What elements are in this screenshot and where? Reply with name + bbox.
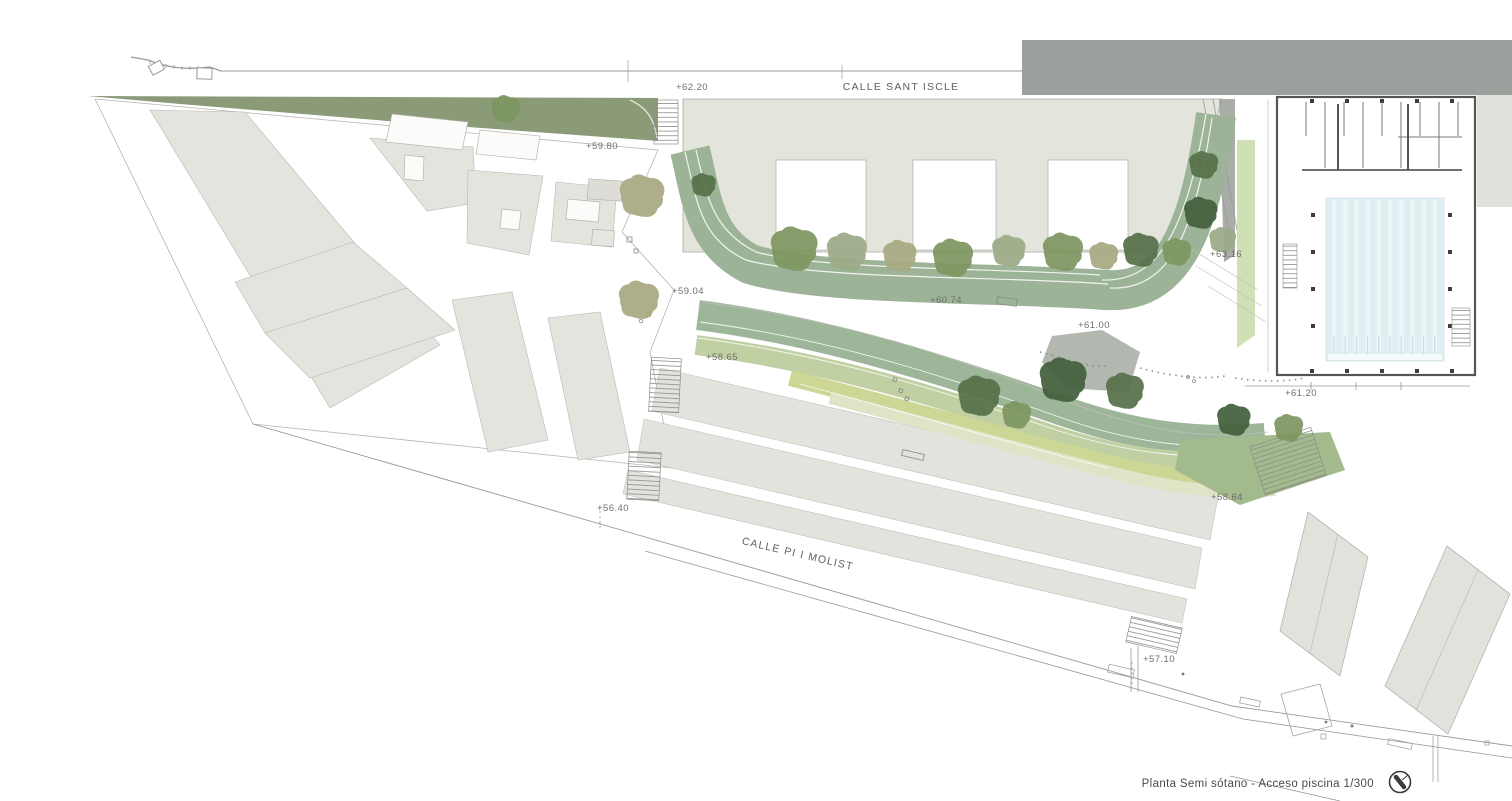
stair — [649, 357, 682, 412]
column — [1310, 369, 1314, 373]
street-label-sant-iscle: CALLE SANT ISCLE — [843, 81, 959, 93]
stair — [654, 100, 678, 144]
column — [1450, 369, 1454, 373]
column — [1310, 99, 1314, 103]
drawing-title: Planta Semi sótano - Acceso piscina 1/30… — [1142, 778, 1374, 790]
school-building — [683, 99, 1222, 252]
column — [1448, 213, 1452, 217]
ramp-green-strip — [1237, 140, 1255, 348]
pool-end-lane — [1328, 354, 1442, 360]
right-edge-parcel — [1477, 95, 1512, 207]
shed — [591, 229, 614, 246]
courtyard — [404, 155, 424, 181]
courtyard — [500, 209, 521, 230]
wall-fragment — [197, 68, 212, 80]
shed — [587, 179, 622, 201]
column — [1450, 99, 1454, 103]
column — [1311, 287, 1315, 291]
elevation-label: +60.74 — [930, 295, 962, 306]
courtyard — [913, 160, 996, 250]
column — [1448, 287, 1452, 291]
elevation-label: +56.40 — [597, 503, 629, 514]
column — [1448, 250, 1452, 254]
stair — [1452, 308, 1470, 346]
column — [1415, 369, 1419, 373]
elevation-label: +57.10 — [1143, 654, 1175, 665]
elevation-label: +58.65 — [706, 352, 738, 363]
upper-street-band — [1022, 40, 1512, 95]
elevation-label: +59.80 — [586, 141, 618, 152]
pool-building — [1245, 97, 1475, 390]
elevation-label: +62.20 — [676, 82, 708, 93]
column — [1415, 99, 1419, 103]
column — [1311, 250, 1315, 254]
elevation-label: +59.04 — [672, 286, 704, 297]
column — [1311, 324, 1315, 328]
courtyard — [566, 199, 600, 222]
stair — [627, 451, 661, 501]
elevation-label: +61.20 — [1285, 388, 1317, 399]
column — [1311, 213, 1315, 217]
column — [1345, 369, 1349, 373]
elevation-label: +58.64 — [1211, 492, 1243, 503]
site-plan-page: +62.20+59.80+59.04+58.65+56.40+60.74+61.… — [0, 0, 1512, 801]
column — [1448, 324, 1452, 328]
stair — [1283, 244, 1297, 288]
column — [1380, 369, 1384, 373]
elevation-label: +63.16 — [1210, 249, 1242, 260]
elevation-label: +61.00 — [1078, 320, 1110, 331]
site-plan-canvas: +62.20+59.80+59.04+58.65+56.40+60.74+61.… — [0, 0, 1512, 801]
column — [1345, 99, 1349, 103]
